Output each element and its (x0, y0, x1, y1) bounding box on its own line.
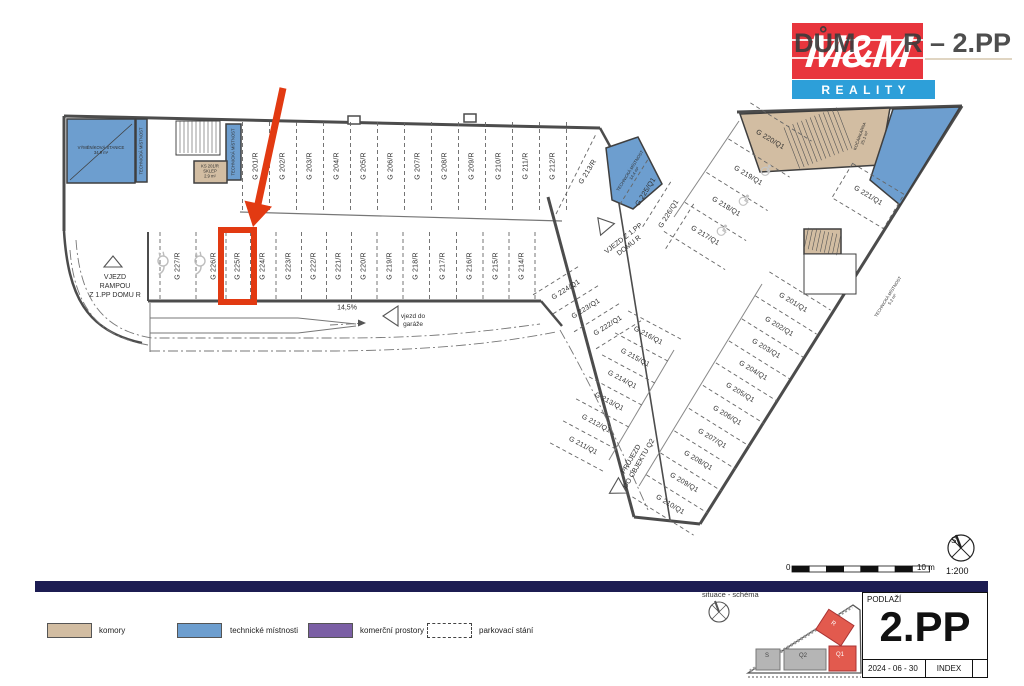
titleblock-date: 2024 - 06 - 30 (863, 664, 925, 673)
direction-arrows (104, 212, 631, 501)
floorplan-page: DŮM R – 2.PP M&M REALITY G 201/RG 202/RG… (0, 0, 1024, 686)
arrow-ramp-icon (104, 256, 122, 267)
road-markings (70, 240, 648, 510)
room-q1-core (804, 254, 856, 294)
text-vjezd-garaz: vjezd do garáže (401, 313, 425, 329)
text-vymenik: VÝMĚNÍKOVÁ STANICE 34.9 m² (78, 145, 125, 155)
legend-swatch-technicke (177, 623, 222, 638)
selection-arrow-shaft (258, 88, 283, 204)
minimap-caption: situace - schéma (702, 590, 759, 599)
legend-swatch-komercni (308, 623, 353, 638)
legend-swatch-komory (47, 623, 92, 638)
minimap-label-q2: Q2 (799, 653, 807, 659)
text-tech-strip-left: TECHNICKÁ MÍSTNOST (138, 128, 143, 175)
minimap-building-r (816, 609, 854, 645)
legend-label-komercni: komerční prostory (360, 626, 424, 635)
page-title-left: DŮM (794, 28, 856, 59)
footer-rule (35, 581, 988, 592)
arrow-garage-icon (383, 306, 398, 326)
titleblock-floor: 2.PP (863, 603, 987, 651)
compass-north-label: S (951, 536, 956, 545)
minimap-label-s: S (765, 653, 769, 659)
page-title-right: R – 2.PP (903, 28, 1011, 59)
titleblock-empty-cell (972, 660, 987, 677)
legend-label-parkovaci: parkovací stání (479, 626, 533, 635)
ev-plug-icon (191, 251, 207, 274)
legend-swatch-parkovaci (427, 623, 472, 638)
titleblock: PODLAŽÍ 2.PP 2024 - 06 - 30 INDEX (862, 592, 988, 678)
selection-arrow-head (245, 201, 273, 227)
staircase-r (176, 121, 220, 155)
wheelchair-icon (716, 222, 730, 237)
ev-plug-icon (154, 251, 170, 274)
scalebar-ratio: 1:200 (946, 566, 969, 576)
minimap-label-q1: Q1 (836, 652, 844, 658)
legend-label-komory: komory (99, 626, 125, 635)
text-vjezd-rampou: VJEZD RAMPOU Z 1.PP DOMU R (89, 274, 141, 300)
scalebar-max: 10 m (917, 563, 935, 572)
titleblock-index: INDEX (925, 660, 972, 677)
scalebar-zero: 0 (786, 563, 790, 572)
scale-bar (792, 566, 930, 572)
text-sklep: KS 201/R SKLEP 2.9 m² (201, 163, 219, 178)
legend-label-technicke: technické místnosti (230, 626, 298, 635)
logo-reality-text: REALITY (816, 83, 911, 97)
minimap-building-q1 (829, 646, 856, 671)
minimap (709, 601, 861, 677)
text-tech-strip-right: TECHNICKÁ MÍSTNOST (230, 129, 235, 176)
generated-stall-lines (154, 103, 852, 535)
text-ramp-slope: 14,5% (337, 305, 357, 314)
logo-reality-box: REALITY (792, 80, 935, 99)
arrow-vjezd-q1-icon (591, 212, 614, 235)
